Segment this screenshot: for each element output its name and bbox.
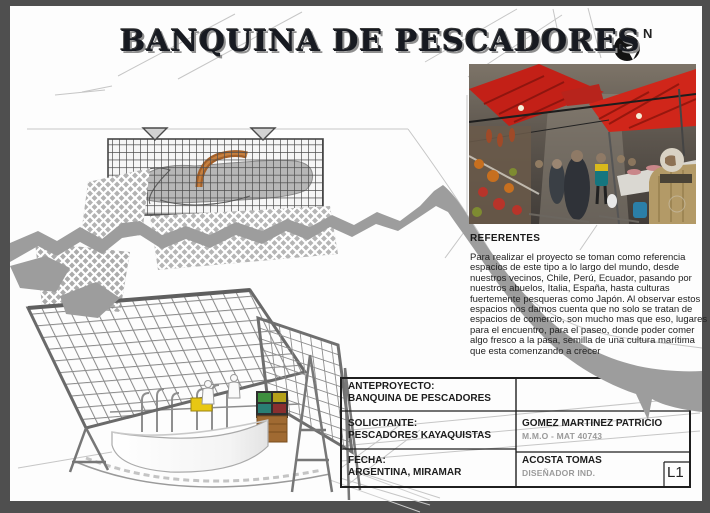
referentes-heading: REFERENTES <box>470 233 540 244</box>
page-title: BANQUINA DE PESCADORES <box>120 24 610 59</box>
professional-2-detail: DISEÑADOR IND. <box>522 468 595 478</box>
solicitante-label: SOLICITANTE: <box>348 418 417 429</box>
north-label: N <box>643 26 652 41</box>
fecha-value: ARGENTINA, MIRAMAR <box>348 467 461 478</box>
solicitante-value: PESCADORES KAYAQUISTAS <box>348 430 491 441</box>
counter <box>112 420 268 472</box>
anteproyecto-value: BANQUINA DE PESCADORES <box>348 393 491 404</box>
referentes-body: Para realizar el proyecto se toman como … <box>470 253 710 357</box>
professional-1-detail: M.M.O - MAT 40743 <box>522 431 602 441</box>
presentation-board: BANQUINA DE PESCADORES N REFERENTES Para… <box>0 0 710 513</box>
sheet-number: L1 <box>667 464 684 481</box>
anteproyecto-label: ANTEPROYECTO: <box>348 381 435 392</box>
market-photo <box>469 64 696 224</box>
professional-2-name: ACOSTA TOMAS <box>522 455 602 466</box>
professional-1-name: GOMEZ MARTINEZ PATRICIO <box>522 418 662 429</box>
fecha-label: FECHA: <box>348 455 386 466</box>
